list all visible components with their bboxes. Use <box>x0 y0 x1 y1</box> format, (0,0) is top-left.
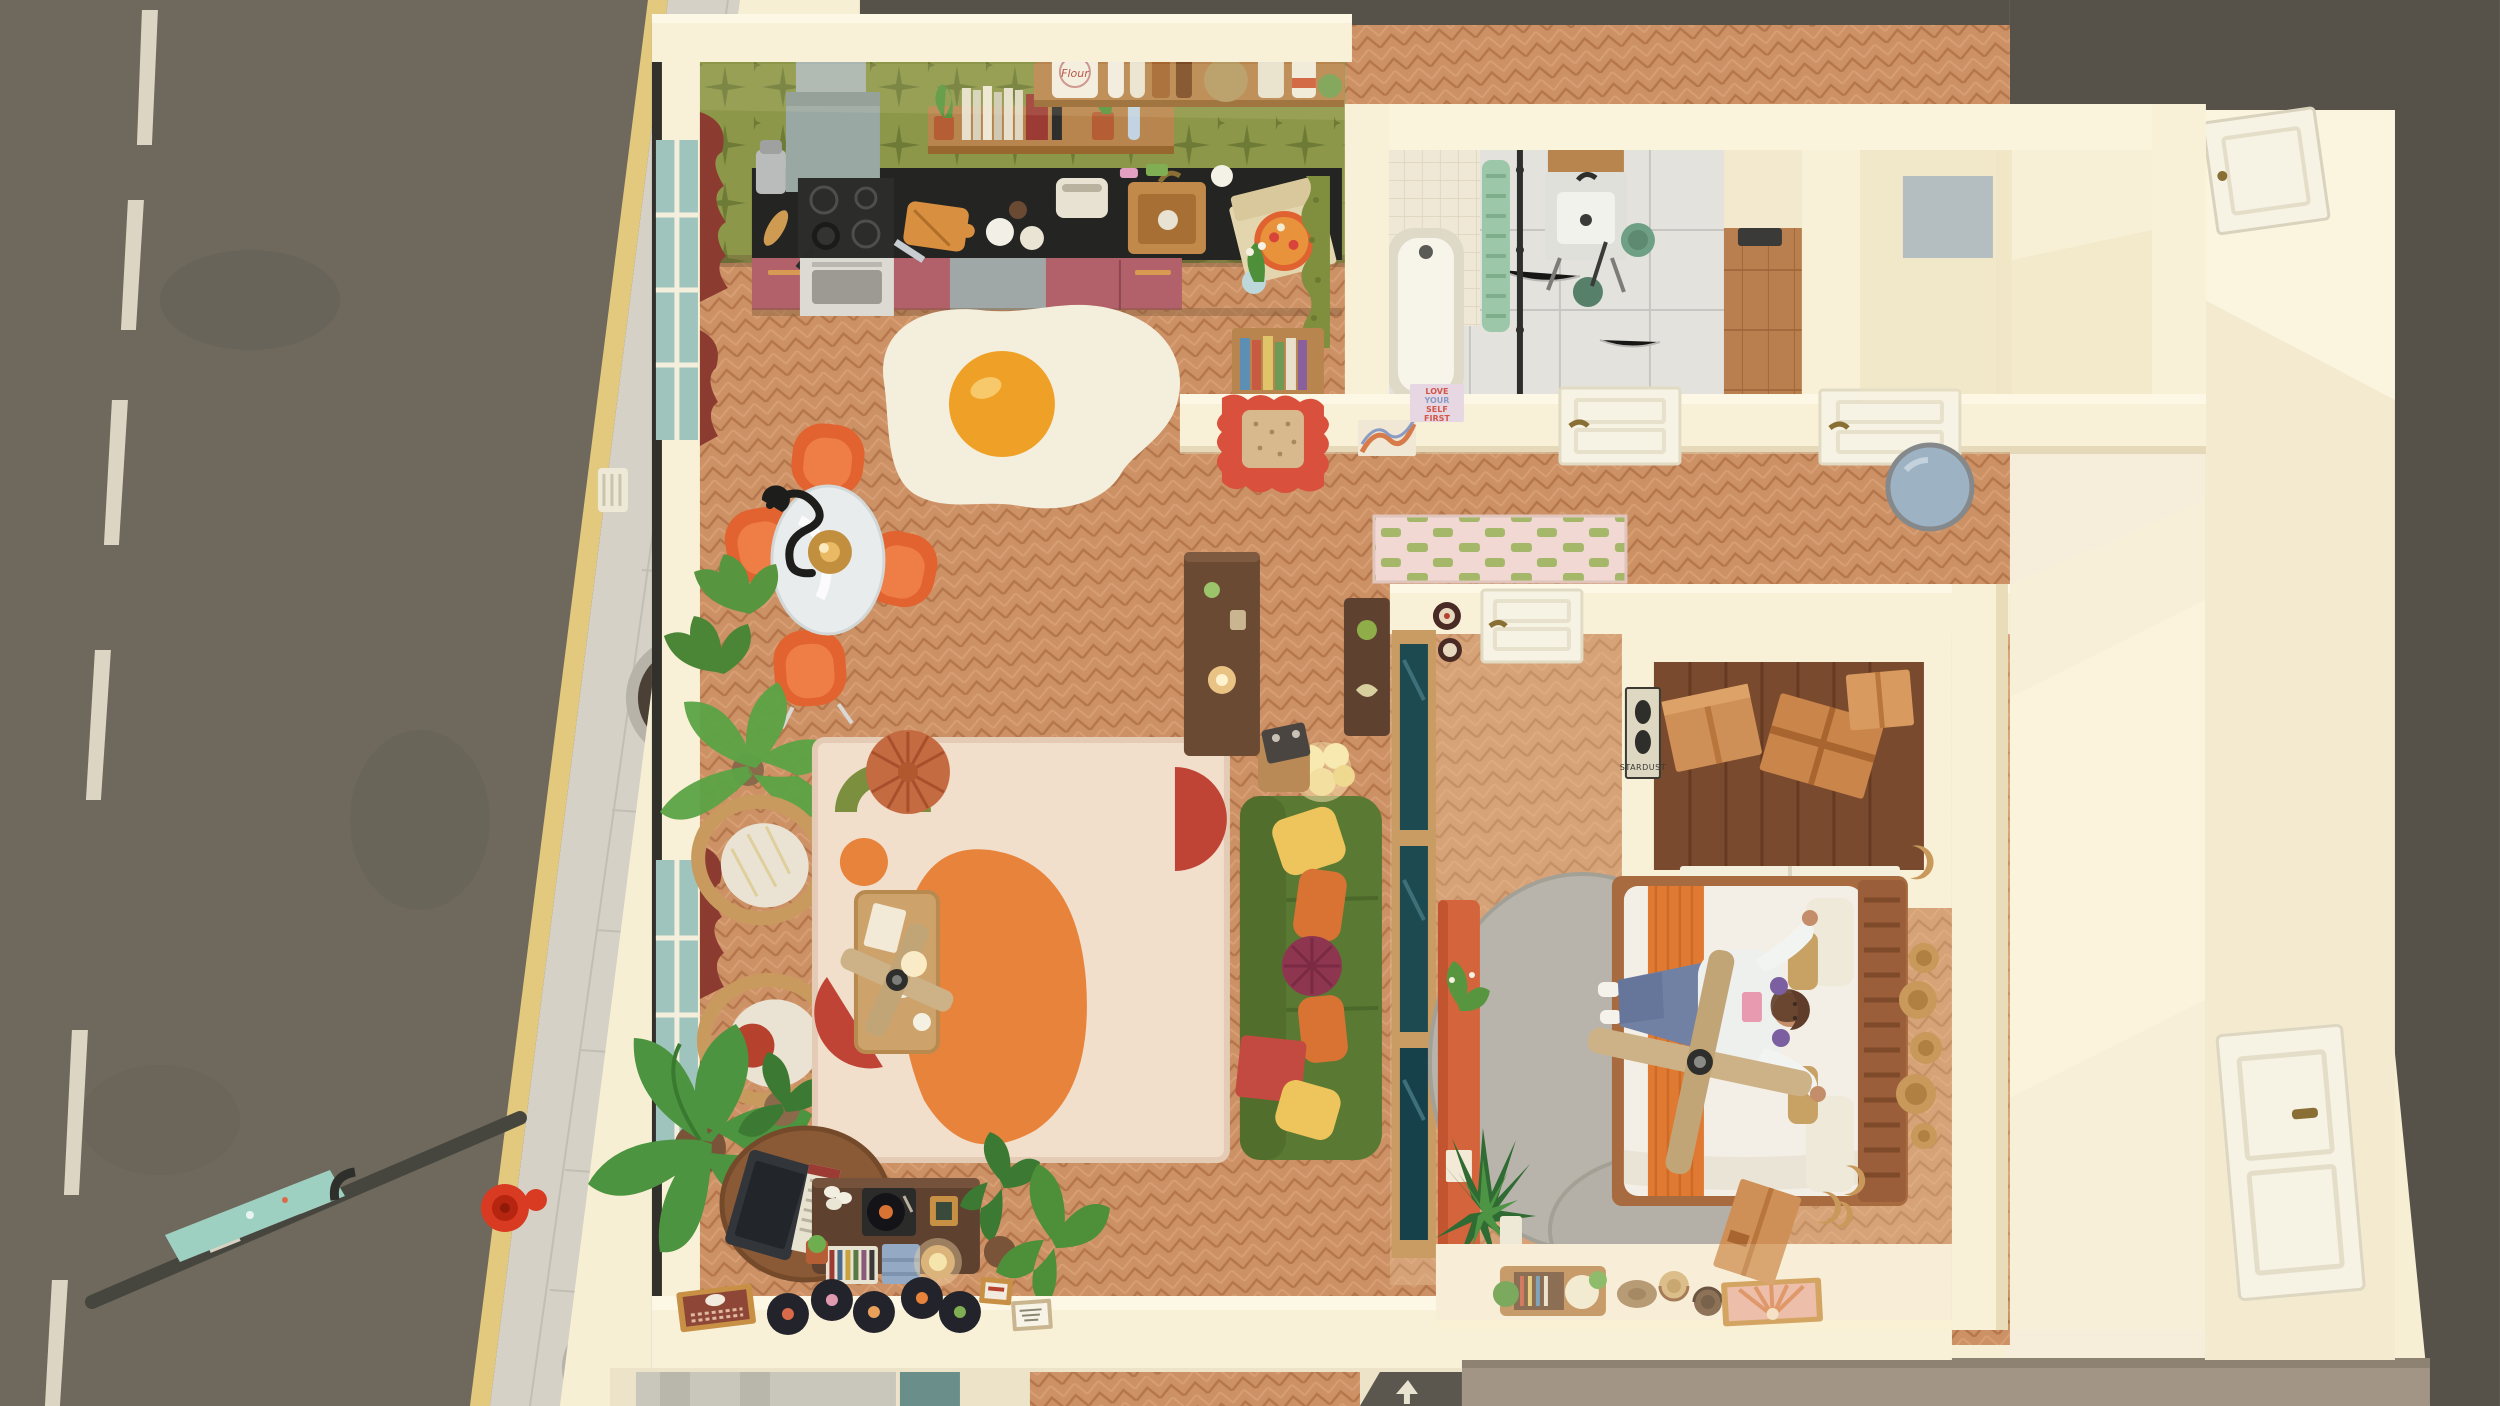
bathroom-door[interactable] <box>1560 388 1680 464</box>
game-viewport: Flour <box>0 0 2500 1406</box>
bedroom-entry-door[interactable] <box>1482 590 1582 662</box>
svg-text:YOUR: YOUR <box>1424 396 1450 405</box>
headboard <box>1858 880 1906 1202</box>
shower-rod <box>1516 150 1524 398</box>
kitchen-sink[interactable] <box>1128 173 1206 254</box>
rug-orange-circle <box>840 838 888 886</box>
apartment-scene: Flour <box>0 0 2500 1406</box>
cocoa-jar <box>1009 201 1027 219</box>
toaster[interactable] <box>1056 178 1108 218</box>
corridor-door-lower[interactable] <box>2217 1025 2365 1300</box>
espresso-maker[interactable] <box>756 140 786 194</box>
runner-rug[interactable] <box>1374 516 1626 582</box>
svg-text:LOVE: LOVE <box>1425 387 1448 396</box>
glass-partition <box>1392 630 1436 1258</box>
red-wavy-mirror[interactable] <box>1217 394 1329 493</box>
bowl[interactable] <box>986 218 1014 246</box>
svg-text:STARDUST: STARDUST <box>1620 763 1666 772</box>
pillow-orange <box>1291 867 1348 943</box>
living-south-wall <box>610 1277 1462 1406</box>
radio-side-table[interactable] <box>1258 722 1311 792</box>
bedroom-closet: STARDUST <box>1620 630 1952 908</box>
bathroom-north-wall <box>1345 104 2195 150</box>
succulent-pot[interactable] <box>806 1235 828 1264</box>
tub-drain <box>1419 245 1433 259</box>
swirl-art[interactable] <box>1358 420 1416 456</box>
bathtub[interactable] <box>1388 228 1464 402</box>
dish-towel <box>1146 164 1168 176</box>
dishwasher[interactable] <box>950 258 1046 310</box>
corridor-door-upper[interactable] <box>2203 108 2329 234</box>
hall-console-table[interactable] <box>1344 598 1390 736</box>
mug[interactable] <box>1211 165 1233 187</box>
round-mirror[interactable] <box>1888 445 1972 529</box>
hair-tie <box>1772 1029 1790 1047</box>
bedroom-vent <box>1500 1216 1522 1246</box>
record-crate[interactable] <box>826 1246 878 1284</box>
small-art-frame[interactable] <box>979 1277 1013 1306</box>
kitchen-window[interactable] <box>656 140 698 440</box>
mirror-cabinet <box>1548 148 1624 174</box>
tall-cabinet[interactable] <box>1184 552 1260 756</box>
handwritten-note-frame[interactable] <box>1011 1299 1053 1332</box>
sneaker <box>1598 982 1620 997</box>
sneaker <box>1600 1010 1622 1024</box>
radiator-mint[interactable] <box>1482 160 1510 332</box>
green-sofa[interactable] <box>1235 796 1382 1160</box>
hair-tie <box>1770 977 1788 995</box>
stove[interactable] <box>798 178 894 268</box>
kitchen-bookshelf[interactable] <box>1232 328 1324 400</box>
oven[interactable] <box>800 258 894 316</box>
sponge <box>1120 168 1138 178</box>
record-player[interactable] <box>862 1188 916 1236</box>
cardboard-box[interactable] <box>1846 669 1915 730</box>
shirt-graphic <box>1742 992 1762 1022</box>
pouf[interactable] <box>866 730 950 814</box>
stardust-poster[interactable]: STARDUST <box>1620 688 1666 778</box>
love-yourself-poster[interactable]: LOVE YOUR SELF FIRST <box>1410 384 1464 423</box>
bath-nook-wood-floor <box>1724 228 1802 402</box>
green-stool[interactable] <box>1573 277 1603 307</box>
svg-text:FIRST: FIRST <box>1424 414 1450 423</box>
apple-decor <box>1357 620 1377 640</box>
roof-dark-topright <box>2010 0 2500 110</box>
svg-text:SELF: SELF <box>1426 405 1448 414</box>
